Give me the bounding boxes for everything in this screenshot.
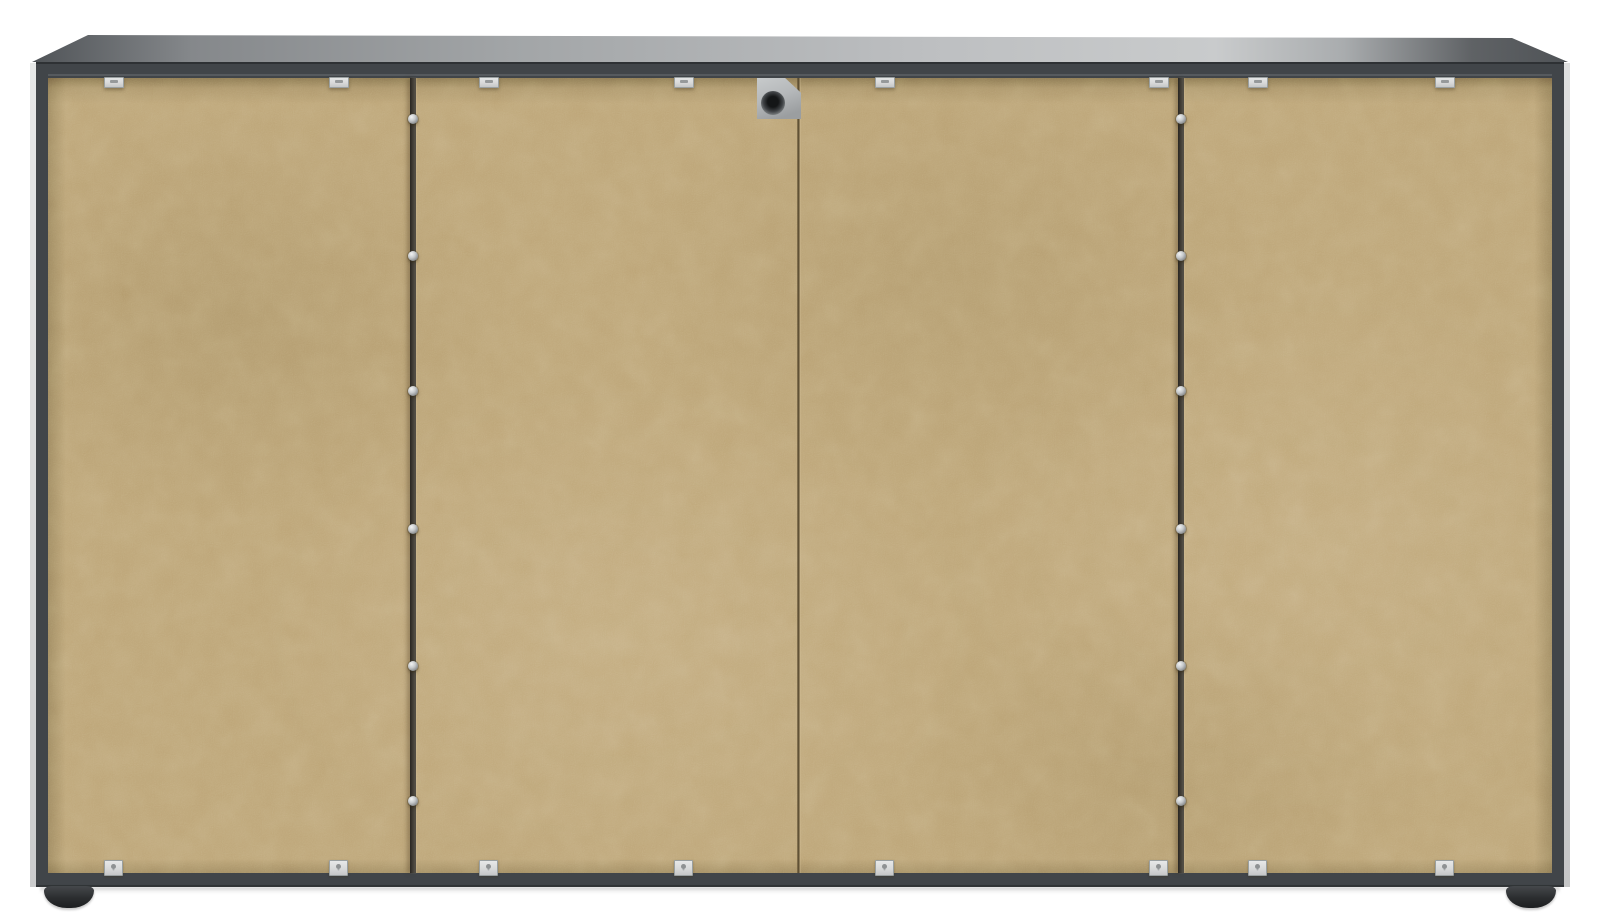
floor-shadow xyxy=(40,887,1560,894)
staple-dot xyxy=(1156,864,1161,869)
staple xyxy=(875,77,895,88)
staple-slot xyxy=(881,80,889,83)
staple xyxy=(104,860,123,876)
product-photo-stage xyxy=(0,0,1600,923)
screw xyxy=(408,524,418,534)
screw xyxy=(1176,524,1186,534)
staple xyxy=(1149,77,1169,88)
screw xyxy=(1176,114,1186,124)
screw xyxy=(408,251,418,261)
staple-slot xyxy=(335,80,343,83)
staple-slot xyxy=(1441,80,1449,83)
panel-seam xyxy=(797,78,801,873)
staple-dot xyxy=(336,864,341,869)
cabinet-foot xyxy=(44,886,94,908)
staple-dot xyxy=(486,864,491,869)
bracket-hole xyxy=(761,91,785,115)
staple-slot xyxy=(1254,80,1262,83)
screw xyxy=(1176,661,1186,671)
screw xyxy=(408,114,418,124)
screw xyxy=(1176,796,1186,806)
screw xyxy=(408,661,418,671)
cabinet-foot xyxy=(1506,886,1556,908)
staple xyxy=(1248,860,1267,876)
screw xyxy=(1176,386,1186,396)
staple-dot xyxy=(1255,864,1260,869)
cabinet-top-surface xyxy=(0,0,1600,63)
top-rail-edge-highlight xyxy=(48,74,1552,76)
staple-dot xyxy=(1442,864,1447,869)
staple xyxy=(479,860,498,876)
staple-dot xyxy=(111,864,116,869)
staple xyxy=(329,860,348,876)
staple xyxy=(674,77,694,88)
staple xyxy=(104,77,124,88)
staple-slot xyxy=(110,80,118,83)
staple xyxy=(329,77,349,88)
staple xyxy=(1435,77,1455,88)
panel-divider xyxy=(1178,78,1184,873)
staple-dot xyxy=(681,864,686,869)
screw xyxy=(408,796,418,806)
staple-slot xyxy=(680,80,688,83)
panel-divider xyxy=(410,78,416,873)
screw xyxy=(408,386,418,396)
staple-slot xyxy=(1155,80,1163,83)
staple xyxy=(1149,860,1168,876)
staple xyxy=(1435,860,1454,876)
staple xyxy=(479,77,499,88)
staple-dot xyxy=(882,864,887,869)
staple-slot xyxy=(485,80,493,83)
staple xyxy=(1248,77,1268,88)
staple xyxy=(875,860,894,876)
screw xyxy=(1176,251,1186,261)
staple xyxy=(674,860,693,876)
